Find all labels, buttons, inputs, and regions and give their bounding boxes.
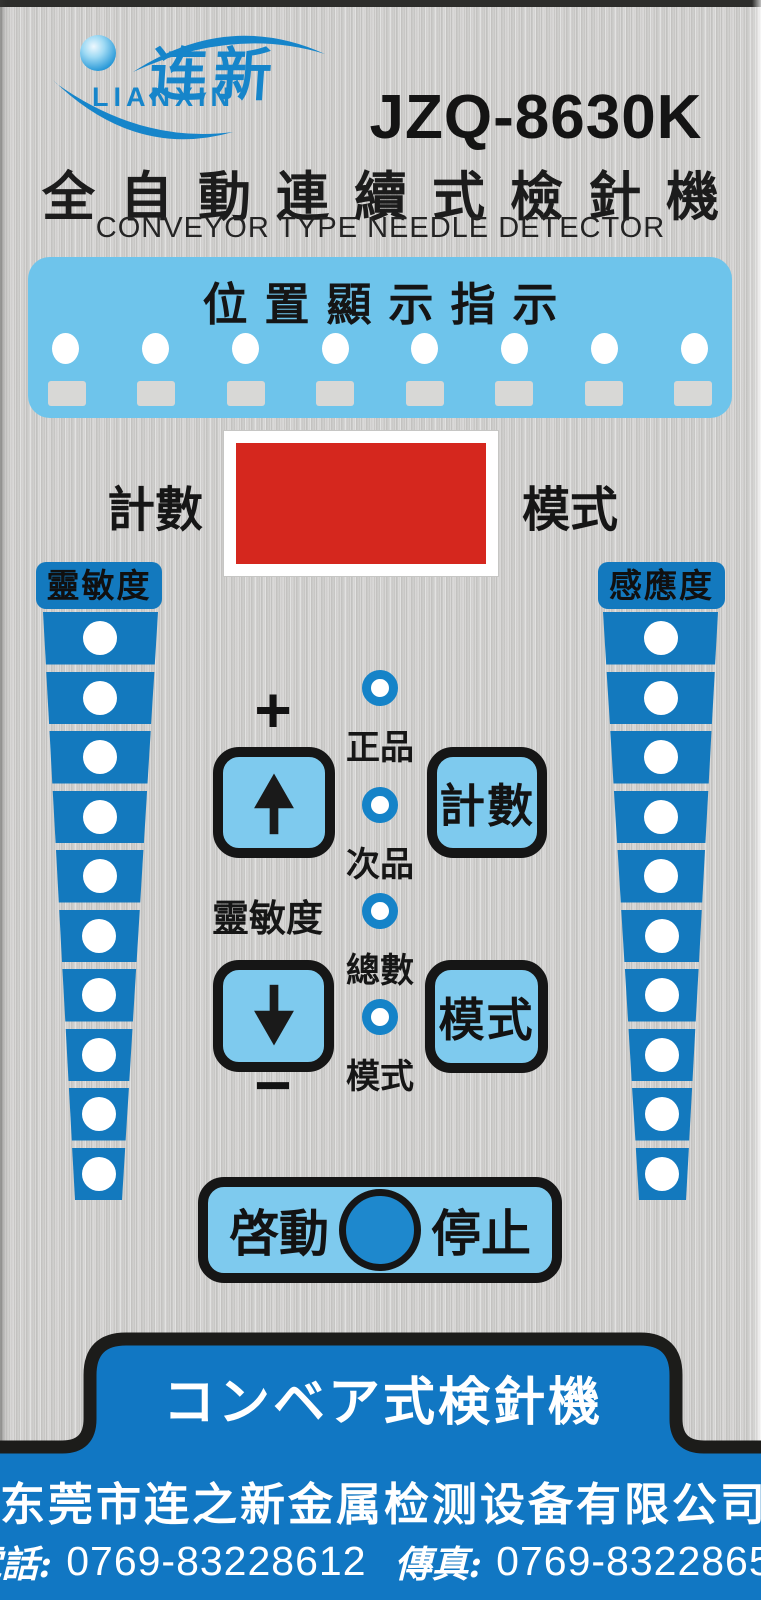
stop-label: 停止: [431, 1194, 531, 1266]
model-number: JZQ-8630K: [355, 82, 717, 153]
induction-segment: [603, 1029, 718, 1082]
induction-segment: [603, 1148, 718, 1201]
induction-segment: [603, 910, 718, 963]
sensitivity-adjust-label: 靈敏度: [200, 888, 335, 942]
arrow-up-icon: [248, 768, 300, 838]
induction-segment: [603, 850, 718, 903]
sensitivity-segment: [43, 850, 158, 903]
position-panel-title: 位置顯示指示: [28, 268, 732, 333]
good-led-icon: [362, 670, 398, 706]
logo-sphere-icon: [80, 35, 116, 71]
segment-led-icon: [644, 681, 678, 715]
segment-led-icon: [83, 800, 117, 834]
segment-led-icon: [645, 1157, 679, 1191]
sensitivity-segment: [43, 969, 158, 1022]
position-indicator-panel: 位置顯示指示: [28, 257, 732, 418]
sensitivity-segment: [43, 791, 158, 844]
induction-led-scale: [603, 612, 718, 1200]
fax-label: 傳真:: [395, 1534, 483, 1588]
start-stop-button[interactable]: 啓動 停止: [198, 1177, 562, 1283]
start-stop-press-circle[interactable]: [339, 1189, 421, 1271]
segment-led-icon: [644, 740, 678, 774]
segment-led-icon: [82, 1097, 116, 1131]
induction-segment: [603, 612, 718, 665]
segment-led-icon: [644, 859, 678, 893]
position-led-icon: [232, 333, 259, 364]
mode-display-label: 模式: [510, 470, 630, 540]
segment-led-icon: [82, 1038, 116, 1072]
segment-led-icon: [645, 978, 679, 1012]
mode-button-label: 模式: [439, 984, 535, 1050]
induction-segment: [603, 731, 718, 784]
segment-led-icon: [83, 621, 117, 655]
position-window: [137, 381, 175, 406]
sensitivity-segment: [43, 672, 158, 725]
contact-row: 電話: 0769-83228612 傳真: 0769-83228650: [0, 1534, 761, 1588]
position-led-icon: [591, 333, 618, 364]
sensitivity-segment: [43, 731, 158, 784]
total-led-label: 總數: [346, 943, 414, 992]
induction-segment: [603, 791, 718, 844]
sensitivity-segment: [43, 910, 158, 963]
status-led-defect: 次品: [340, 787, 420, 886]
segment-led-icon: [83, 681, 117, 715]
status-led-good: 正品: [340, 670, 420, 769]
position-led-icon: [411, 333, 438, 364]
sensitivity-led-scale: [43, 612, 158, 1200]
position-led-row: [28, 333, 732, 364]
position-led-icon: [681, 333, 708, 364]
segment-led-icon: [644, 621, 678, 655]
mode-button[interactable]: 模式: [425, 960, 548, 1073]
position-window: [585, 381, 623, 406]
sensitivity-segment: [43, 1029, 158, 1082]
top-edge-strip: [0, 0, 761, 7]
machine-title-english: CONVEYOR TYPE NEEDLE DETECTOR: [0, 212, 761, 245]
position-led-icon: [322, 333, 349, 364]
position-window: [406, 381, 444, 406]
count-button[interactable]: 計數: [427, 747, 547, 858]
logo-latin-text: LIANXIN: [92, 82, 262, 113]
segment-led-icon: [645, 919, 679, 953]
segment-led-icon: [645, 1097, 679, 1131]
segment-led-icon: [82, 978, 116, 1012]
control-panel-root: 连新 LIANXIN JZQ-8630K 全自動連續式檢針機 CONVEYOR …: [0, 0, 761, 1600]
count-display-label: 計數: [95, 470, 215, 540]
fax-number: 0769-83228650: [496, 1538, 761, 1585]
sensitivity-segment: [43, 612, 158, 665]
position-led-icon: [52, 333, 79, 364]
phone-label: 電話:: [0, 1534, 52, 1588]
segment-led-icon: [82, 919, 116, 953]
footer-tab-text: コンベア式検針機: [100, 1360, 666, 1435]
plus-symbol: +: [233, 680, 313, 740]
good-led-label: 正品: [346, 720, 414, 769]
induction-segment: [603, 1088, 718, 1141]
defect-led-icon: [362, 787, 398, 823]
induction-segment: [603, 672, 718, 725]
increase-button[interactable]: [213, 747, 335, 858]
sensitivity-segment: [43, 1088, 158, 1141]
defect-led-label: 次品: [346, 837, 414, 886]
arrow-down-icon: [248, 981, 300, 1051]
segment-led-icon: [83, 740, 117, 774]
segment-led-icon: [644, 800, 678, 834]
status-led-total: 總數: [340, 893, 420, 992]
segment-led-icon: [83, 859, 117, 893]
segment-led-icon: [645, 1038, 679, 1072]
position-window: [495, 381, 533, 406]
segment-led-icon: [82, 1157, 116, 1191]
position-led-icon: [142, 333, 169, 364]
position-led-icon: [501, 333, 528, 364]
position-window: [48, 381, 86, 406]
position-window-row: [28, 381, 732, 406]
sensitivity-segment: [43, 1148, 158, 1201]
start-label: 啓動: [229, 1194, 329, 1266]
minus-symbol: −: [233, 1055, 313, 1115]
mode-led-label: 模式: [346, 1049, 414, 1098]
induction-segment: [603, 969, 718, 1022]
phone-number: 0769-83228612: [66, 1538, 366, 1585]
induction-scale-header: 感應度: [598, 562, 725, 609]
count-button-label: 計數: [439, 770, 535, 836]
position-window: [227, 381, 265, 406]
status-led-mode: 模式: [340, 999, 420, 1098]
total-led-icon: [362, 893, 398, 929]
position-window: [316, 381, 354, 406]
mode-led-icon: [362, 999, 398, 1035]
seven-segment-display: [224, 431, 498, 576]
position-window: [674, 381, 712, 406]
company-name: 东莞市连之新金属检测设备有限公司: [0, 1468, 761, 1533]
sensitivity-scale-header: 靈敏度: [36, 562, 162, 609]
